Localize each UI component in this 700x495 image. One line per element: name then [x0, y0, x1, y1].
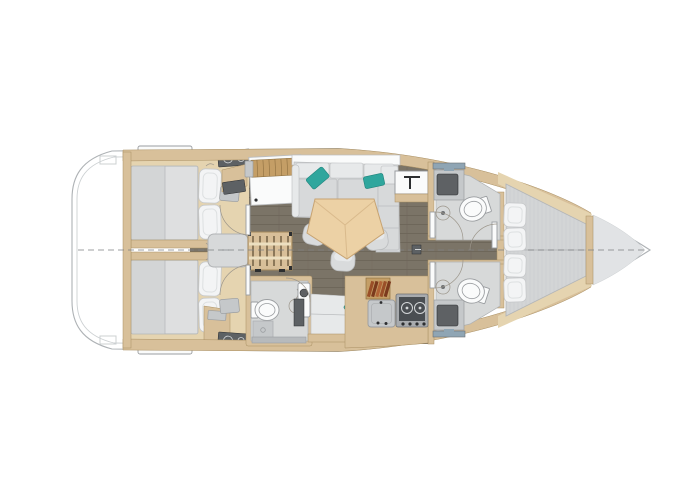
sliding-door-track	[252, 337, 306, 343]
door-leaf	[246, 205, 250, 235]
berth-tone	[165, 167, 197, 239]
head-divider-unit	[294, 299, 304, 326]
door-leaf	[246, 265, 250, 295]
nav-instrument	[245, 161, 253, 177]
shower-tray	[253, 321, 273, 338]
head-sink	[437, 305, 458, 326]
faucet	[444, 329, 454, 333]
toilet	[251, 300, 279, 321]
galley-sink-panel	[368, 300, 395, 327]
head-sink	[437, 174, 458, 195]
door-leaf	[492, 222, 497, 248]
cabin-seat	[219, 298, 239, 314]
bookshelf	[366, 278, 391, 299]
berth-tone	[165, 261, 197, 333]
floor-plan-canvas	[0, 0, 700, 495]
wet-bar	[395, 171, 428, 202]
bench-front	[308, 334, 348, 342]
settee-arm	[292, 165, 299, 217]
galley	[345, 276, 428, 348]
companionway-ladder	[248, 232, 292, 272]
back-cushion	[330, 163, 363, 178]
stove	[396, 294, 428, 327]
bar-step	[395, 194, 428, 202]
faucet	[444, 167, 454, 171]
door-leaf	[430, 262, 435, 288]
aft-cabin-starboard	[123, 149, 251, 248]
boat-floor-plan	[0, 0, 700, 495]
door-leaf	[430, 212, 435, 238]
